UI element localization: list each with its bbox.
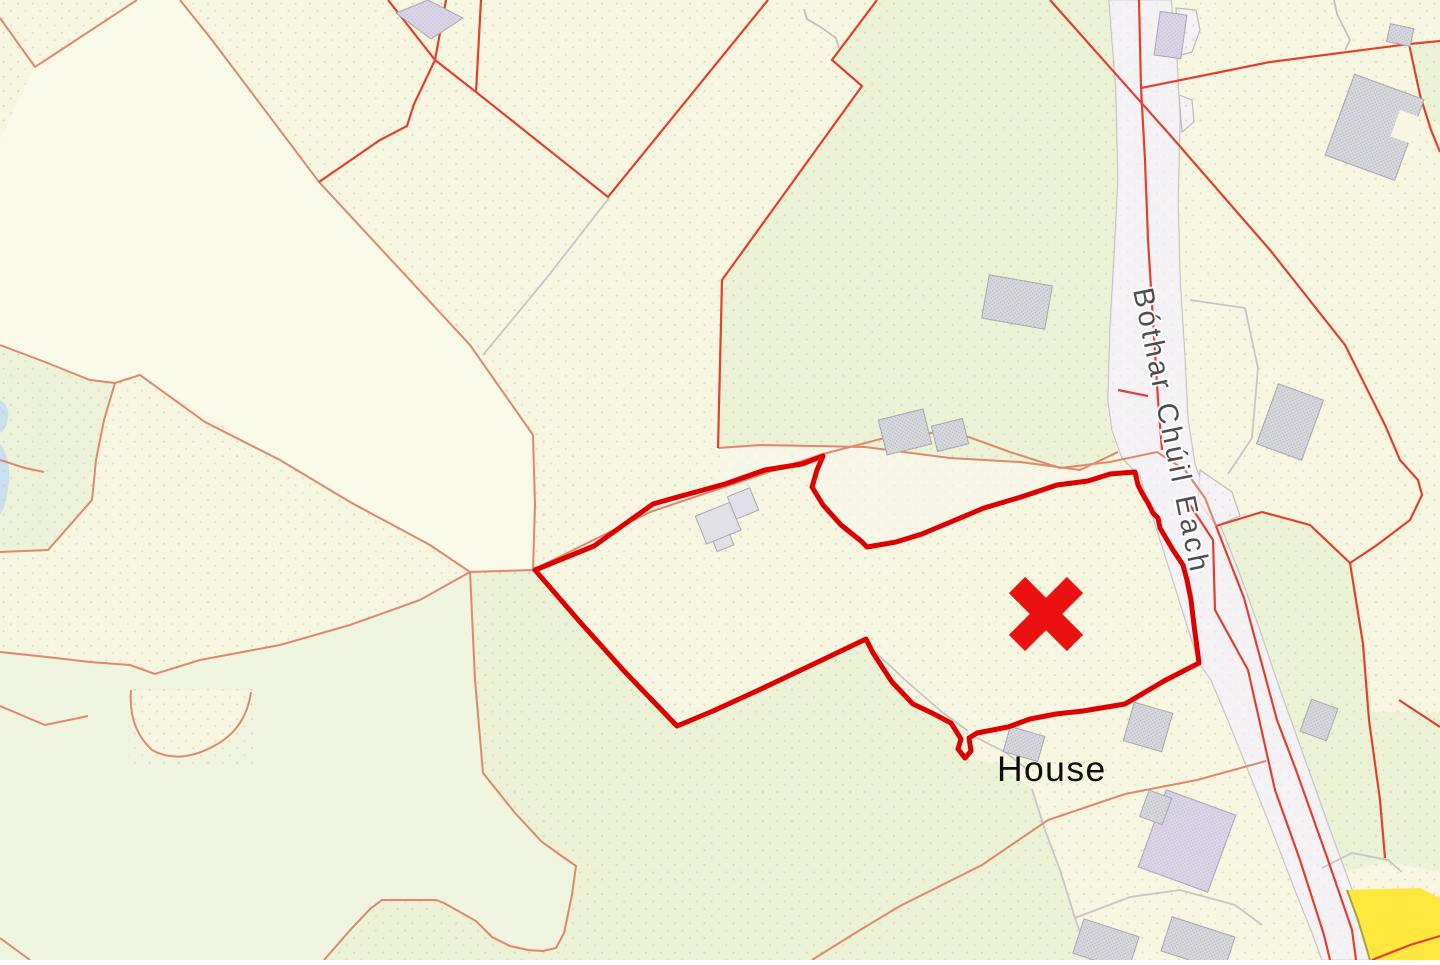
- svg-text:House: House: [997, 749, 1107, 789]
